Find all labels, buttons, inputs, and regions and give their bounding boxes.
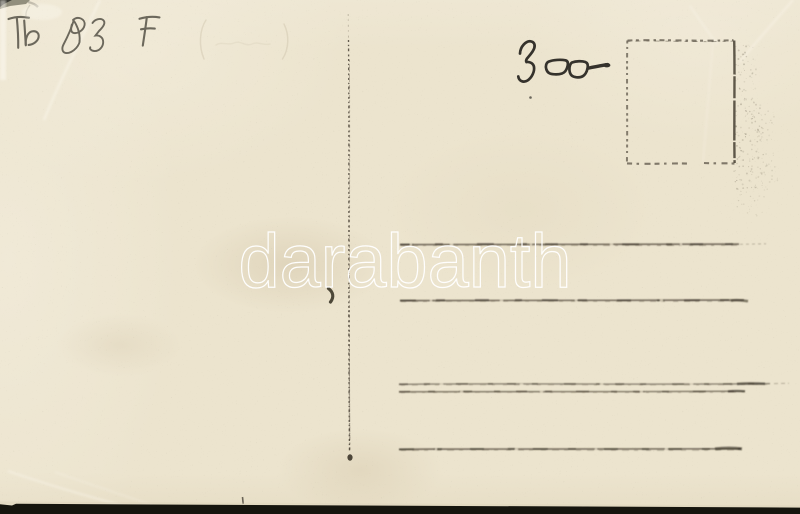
svg-text:darabanth: darabanth [239,219,572,304]
